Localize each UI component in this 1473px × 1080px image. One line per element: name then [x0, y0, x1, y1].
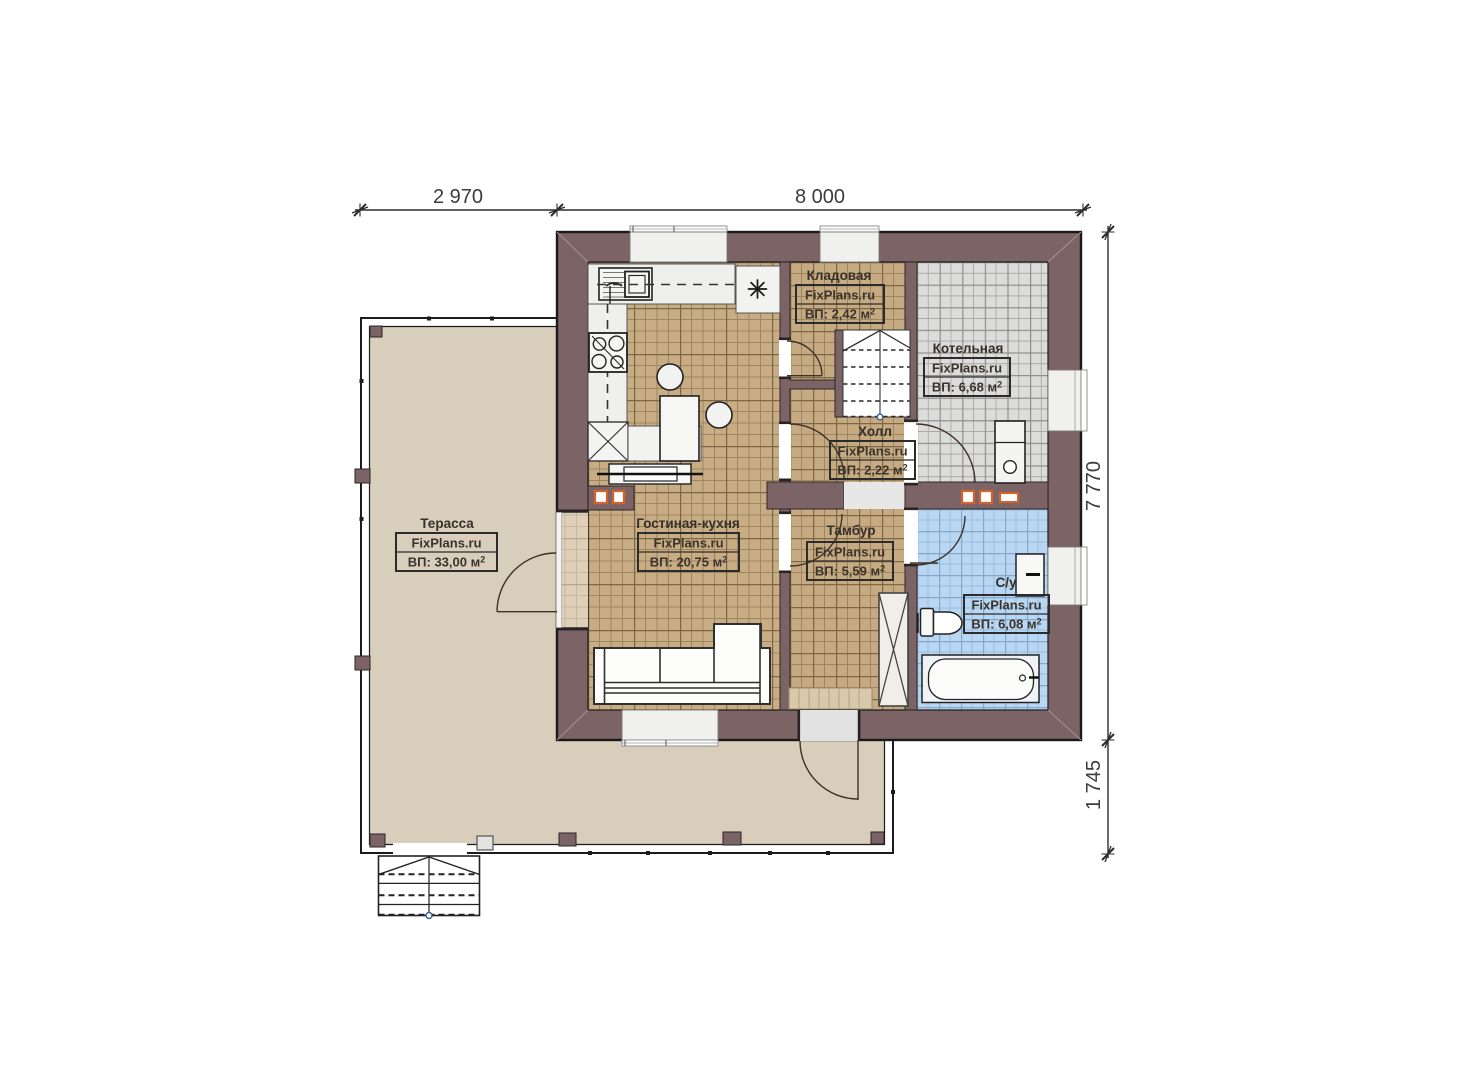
svg-text:С/у: С/у: [995, 575, 1017, 590]
svg-text:ВП: 6,08 м2: ВП: 6,08 м2: [971, 617, 1041, 632]
svg-text:2 970: 2 970: [433, 186, 483, 208]
svg-text:FixPlans.ru: FixPlans.ru: [971, 598, 1041, 613]
svg-text:FixPlans.ru: FixPlans.ru: [411, 536, 481, 551]
svg-text:Терасса: Терасса: [420, 516, 474, 531]
svg-text:7 770: 7 770: [1083, 461, 1105, 511]
svg-text:ВП: 5,59 м2: ВП: 5,59 м2: [815, 564, 885, 579]
svg-text:Котельная: Котельная: [933, 341, 1004, 356]
svg-text:ВП: 33,00 м2: ВП: 33,00 м2: [408, 555, 485, 570]
svg-text:8 000: 8 000: [795, 186, 845, 208]
svg-text:FixPlans.ru: FixPlans.ru: [805, 288, 875, 303]
svg-text:1 745: 1 745: [1083, 760, 1105, 810]
svg-text:ВП: 20,75 м2: ВП: 20,75 м2: [650, 555, 727, 570]
svg-text:ВП: 6,68 м2: ВП: 6,68 м2: [932, 380, 1002, 395]
svg-text:ВП: 2,22 м2: ВП: 2,22 м2: [837, 463, 907, 478]
svg-text:FixPlans.ru: FixPlans.ru: [932, 361, 1002, 376]
svg-text:FixPlans.ru: FixPlans.ru: [837, 444, 907, 459]
svg-text:Холл: Холл: [858, 424, 892, 439]
svg-text:Кладовая: Кладовая: [807, 268, 872, 283]
svg-text:FixPlans.ru: FixPlans.ru: [653, 536, 723, 551]
svg-text:FixPlans.ru: FixPlans.ru: [815, 545, 885, 560]
svg-text:Гостиная-кухня: Гостиная-кухня: [636, 516, 739, 531]
svg-text:ВП: 2,42 м2: ВП: 2,42 м2: [805, 307, 875, 322]
svg-text:Тамбур: Тамбур: [827, 523, 876, 538]
